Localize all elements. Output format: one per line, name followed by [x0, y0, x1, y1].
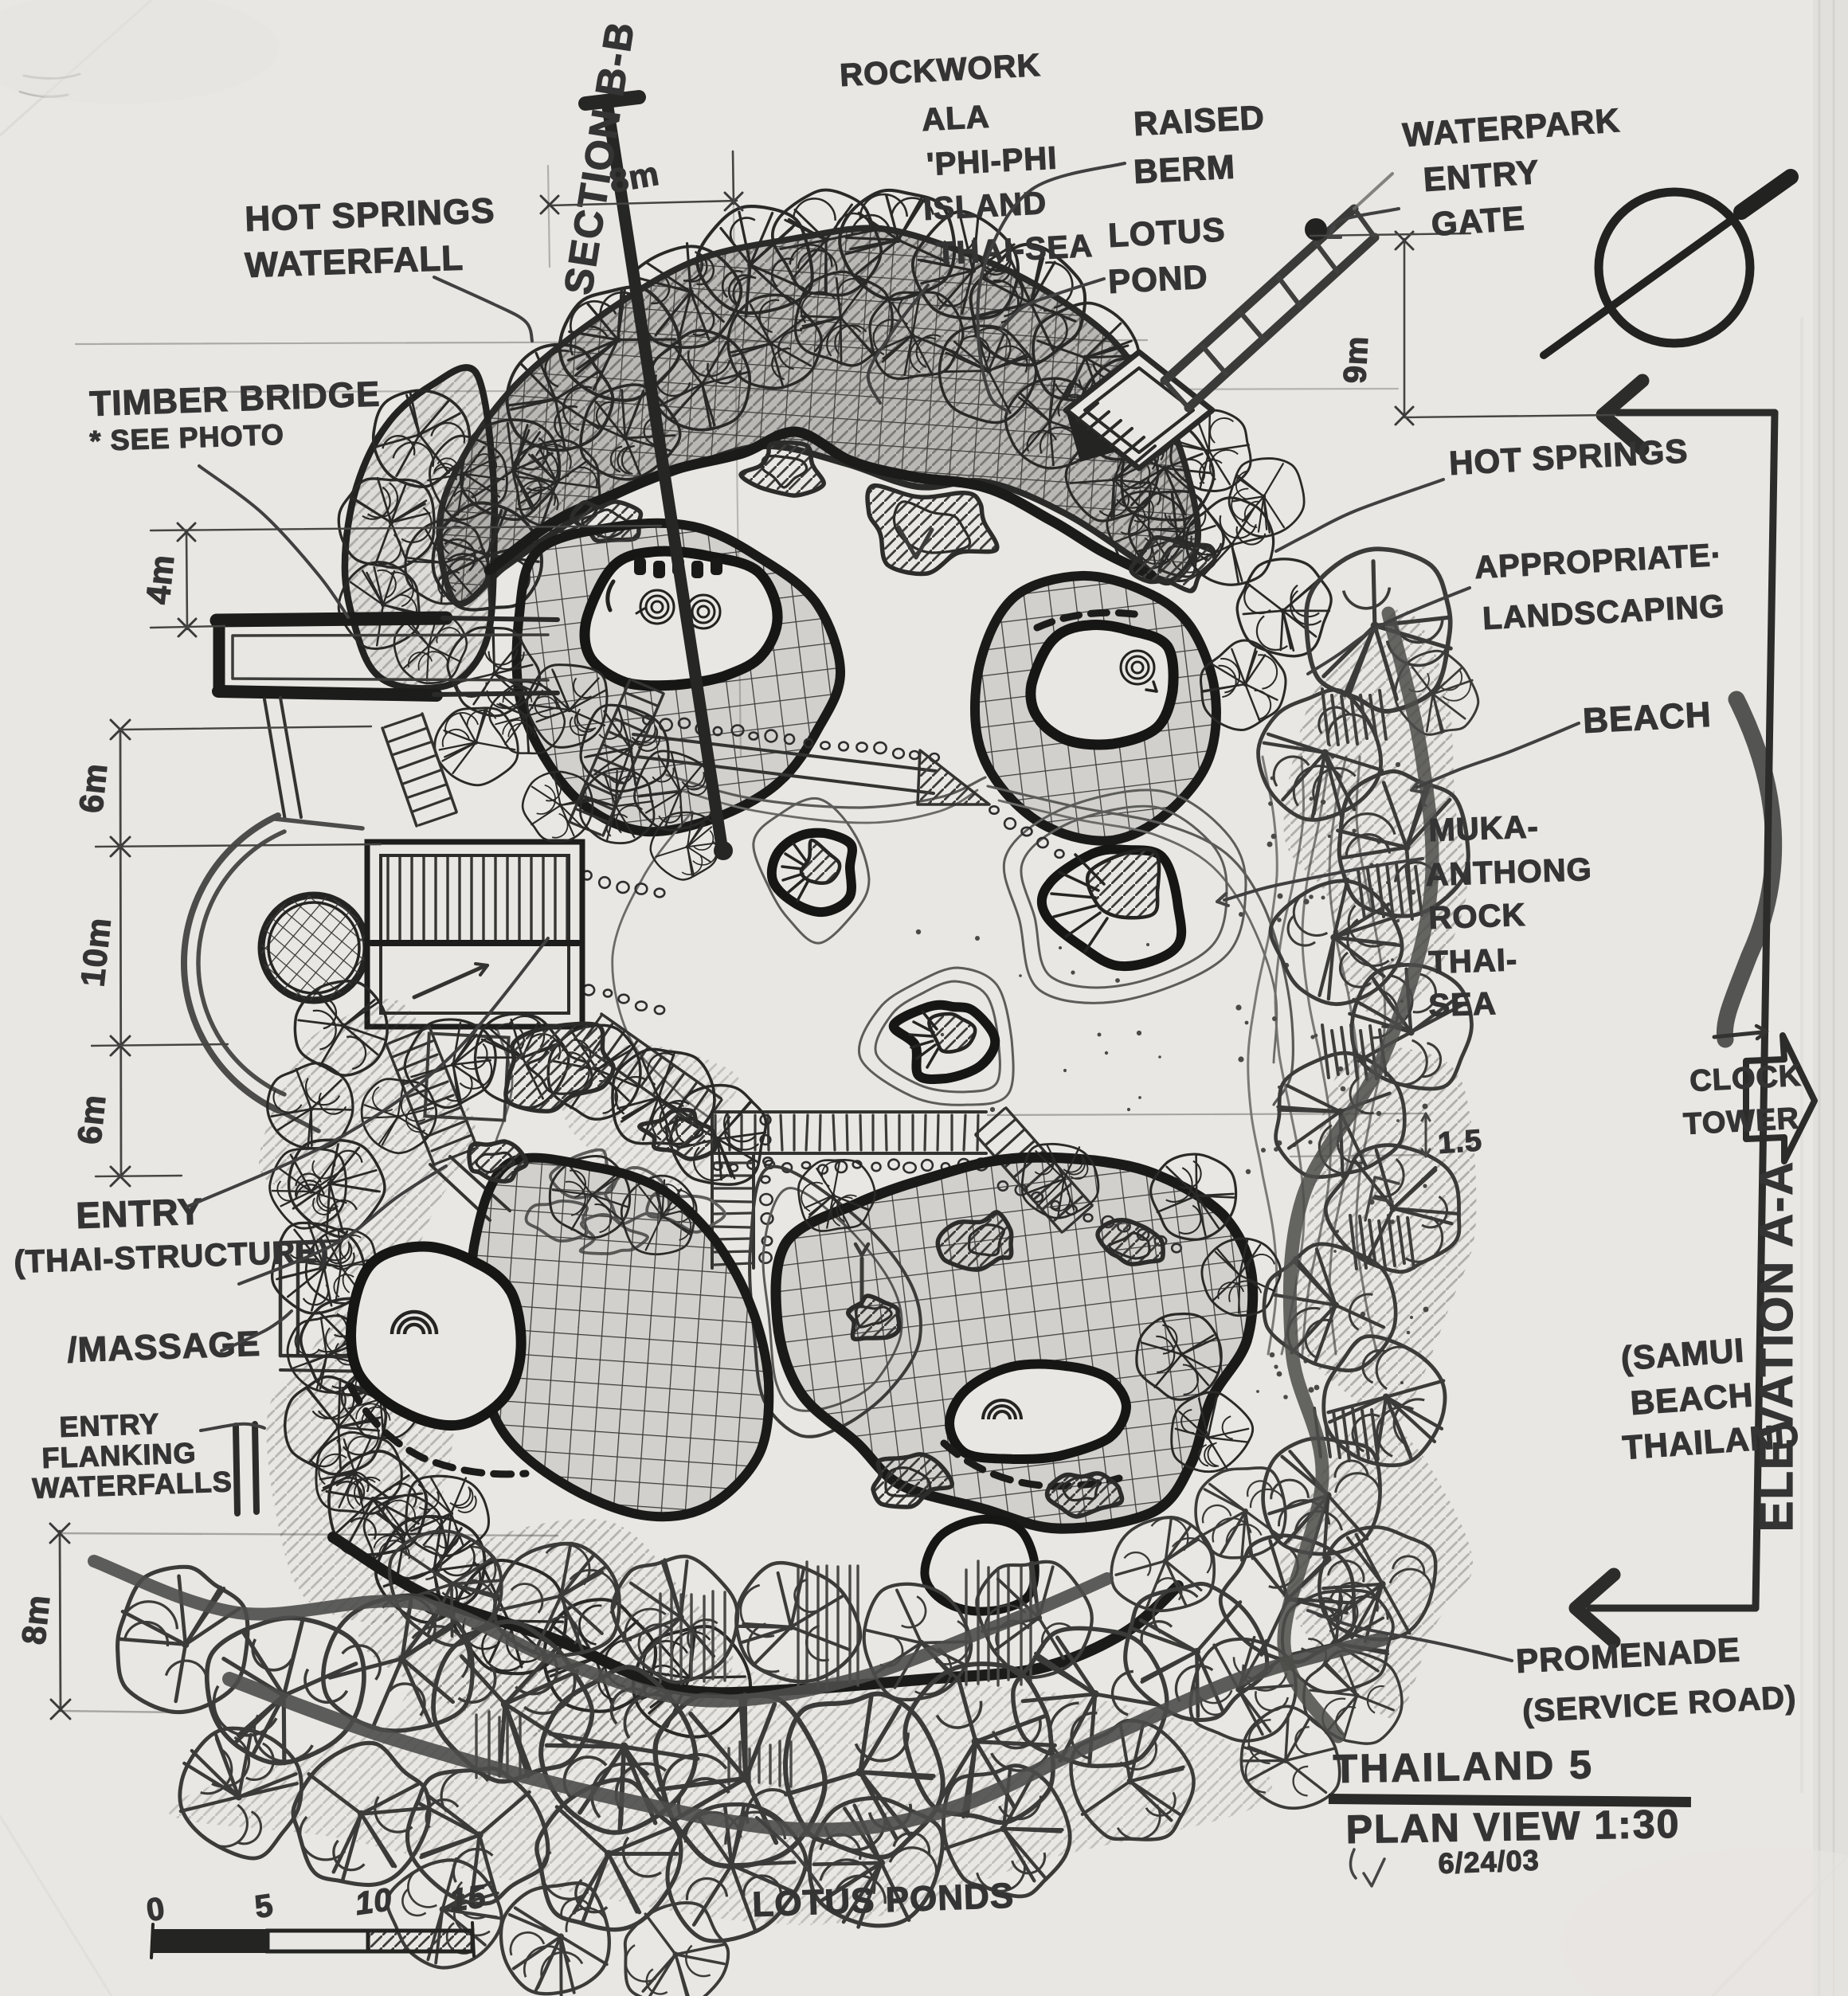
svg-text:ELEVATION A-A: ELEVATION A-A: [1751, 1160, 1803, 1532]
svg-text:6m: 6m: [72, 761, 114, 815]
svg-text:9m: 9m: [1337, 335, 1375, 384]
svg-text:ENTRY: ENTRY: [76, 1190, 204, 1236]
svg-text:ROCK: ROCK: [1428, 898, 1526, 936]
svg-text:ANTHONG: ANTHONG: [1425, 852, 1593, 893]
svg-text:1.5: 1.5: [1437, 1124, 1484, 1160]
svg-text:8m: 8m: [14, 1593, 57, 1646]
svg-text:* SEE PHOTO: * SEE PHOTO: [89, 417, 285, 457]
svg-text:WATERFALL: WATERFALL: [245, 238, 464, 285]
svg-text:RAISED: RAISED: [1133, 98, 1266, 143]
svg-text:MUKA-: MUKA-: [1428, 809, 1540, 848]
svg-text:6m: 6m: [70, 1093, 112, 1146]
svg-text:10: 10: [353, 1882, 394, 1922]
svg-text:GATE: GATE: [1430, 199, 1526, 243]
svg-text:4m: 4m: [139, 553, 181, 606]
svg-text:THAILAND 5: THAILAND 5: [1333, 1742, 1594, 1791]
svg-text:WATERFALLS: WATERFALLS: [32, 1465, 233, 1505]
svg-text:LOTUS: LOTUS: [1107, 210, 1227, 254]
svg-text:THAI-: THAI-: [1428, 942, 1518, 980]
svg-text:'PHI-PHI: 'PHI-PHI: [926, 140, 1058, 182]
svg-text:SEA: SEA: [1428, 986, 1498, 1023]
svg-text:POND: POND: [1107, 257, 1209, 299]
svg-text:CLOCK: CLOCK: [1689, 1059, 1802, 1098]
svg-text:10m: 10m: [73, 915, 118, 988]
svg-text:TOWER: TOWER: [1682, 1102, 1800, 1141]
svg-text:6/24/03: 6/24/03: [1438, 1844, 1540, 1880]
svg-text:BERM: BERM: [1133, 147, 1236, 190]
svg-text:BEACH: BEACH: [1582, 695, 1713, 741]
svg-text:15: 15: [447, 1879, 488, 1919]
svg-text:ALA: ALA: [921, 100, 990, 138]
